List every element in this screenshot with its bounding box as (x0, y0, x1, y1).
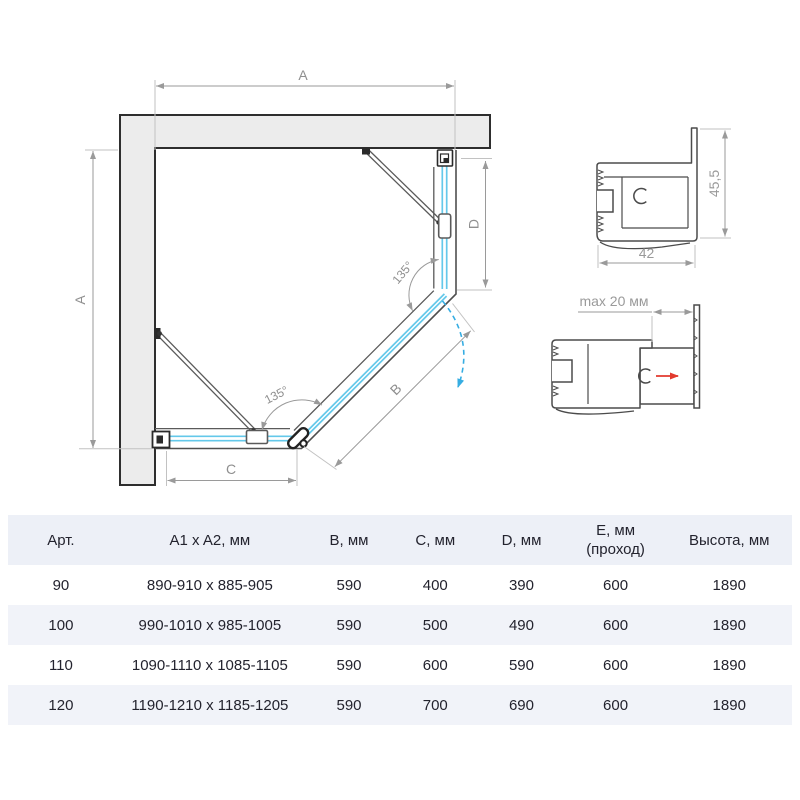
dim-label-b: B (387, 380, 405, 398)
glass-door-panel (306, 294, 447, 435)
frame-inner-door (294, 291, 434, 431)
cell-e: 600 (565, 617, 667, 634)
cell-d: 690 (478, 697, 564, 714)
cell-b: 590 (306, 697, 392, 714)
cell-a1a2: 990-1010 x 985-1005 (114, 617, 306, 634)
cell-height: 1890 (667, 577, 792, 594)
cell-e: 600 (565, 577, 667, 594)
glass-bottom-panel (170, 436, 293, 440)
col-header-e: E, мм (проход) (565, 521, 667, 560)
cell-a1a2: 1090-1110 x 1085-1105 (114, 657, 306, 674)
profile-section-bottom: max 20 мм (552, 293, 700, 414)
cell-d: 490 (478, 617, 564, 634)
cell-art: 120 (8, 697, 114, 714)
bottom-glass-clamp (247, 431, 268, 444)
table-row: 90 890-910 x 885-905 590 400 390 600 189… (8, 565, 792, 605)
spec-table: Арт. A1 x A2, мм B, мм C, мм D, мм E, мм… (8, 515, 792, 725)
cell-c: 600 (392, 657, 478, 674)
cell-art: 90 (8, 577, 114, 594)
profile-bottom-trim (556, 409, 634, 414)
cell-b: 590 (306, 577, 392, 594)
support-bar-lower-wall-dot (157, 331, 162, 336)
support-bar-upper (366, 150, 441, 223)
product-spec-sheet: A A D C (0, 0, 800, 800)
dim-label-c: C (226, 461, 236, 477)
support-bar-upper-wall-fitting (362, 148, 370, 155)
cell-d: 390 (478, 577, 564, 594)
col-header-c: C, мм (392, 532, 478, 549)
angle-lower-135: 135° (262, 383, 322, 430)
frame-outline (155, 150, 456, 449)
dim-label-45-5: 45,5 (706, 170, 722, 197)
col-header-b: B, мм (306, 532, 392, 549)
cell-e: 600 (565, 657, 667, 674)
profile-bottom-channel (552, 360, 572, 382)
table-row: 110 1090-1110 x 1085-1105 590 600 590 60… (8, 645, 792, 685)
cell-c: 500 (392, 617, 478, 634)
cell-height: 1890 (667, 697, 792, 714)
table-row: 100 990-1010 x 985-1005 590 500 490 600 … (8, 605, 792, 645)
profile-section-top: 45,5 42 (597, 128, 731, 268)
cell-art: 110 (8, 657, 114, 674)
table-header-row: Арт. A1 x A2, мм B, мм C, мм D, мм E, мм… (8, 515, 792, 565)
table-row: 120 1190-1210 x 1185-1205 590 700 690 60… (8, 685, 792, 725)
dimension-45-5: 45,5 (700, 129, 731, 238)
side-glass-clamp (439, 214, 451, 238)
profile-top-channel (597, 190, 613, 212)
profile-top-body (597, 128, 697, 241)
dim-label-42: 42 (639, 245, 655, 261)
dim-label-a-top: A (298, 67, 308, 83)
cell-c: 700 (392, 697, 478, 714)
cell-c: 400 (392, 577, 478, 594)
cell-e: 600 (565, 697, 667, 714)
cell-height: 1890 (667, 617, 792, 634)
cell-art: 100 (8, 617, 114, 634)
cell-d: 590 (478, 657, 564, 674)
technical-drawing: A A D C (0, 0, 800, 515)
support-bar-lower (158, 333, 255, 432)
cell-height: 1890 (667, 657, 792, 674)
corner-hinge (286, 426, 310, 450)
bottom-wall-profile (153, 432, 170, 448)
col-header-e-line2: (проход) (565, 540, 667, 560)
dim-label-d: D (466, 219, 482, 229)
angle-upper-135: 135° (389, 258, 438, 310)
angle-upper-label: 135° (389, 258, 416, 286)
dimension-max-20: max 20 мм (578, 293, 693, 342)
col-header-e-line1: E, мм (565, 521, 667, 541)
dimension-c: C (167, 449, 298, 486)
col-header-a1a2: A1 x A2, мм (114, 532, 306, 549)
dimension-d: D (457, 159, 492, 291)
top-wall-bracket (438, 150, 453, 166)
cell-a1a2: 890-910 x 885-905 (114, 577, 306, 594)
cell-b: 590 (306, 657, 392, 674)
col-header-d: D, мм (478, 532, 564, 549)
plan-view: A A D C (72, 67, 492, 486)
dimension-42: 42 (598, 245, 695, 268)
col-header-height: Высота, мм (667, 532, 792, 549)
cell-a1a2: 1190-1210 x 1185-1205 (114, 697, 306, 714)
dimension-b: B (304, 304, 475, 470)
col-header-art: Арт. (8, 532, 114, 549)
dim-label-max-20: max 20 мм (579, 293, 648, 309)
cell-b: 590 (306, 617, 392, 634)
dim-label-a-left: A (72, 295, 88, 305)
